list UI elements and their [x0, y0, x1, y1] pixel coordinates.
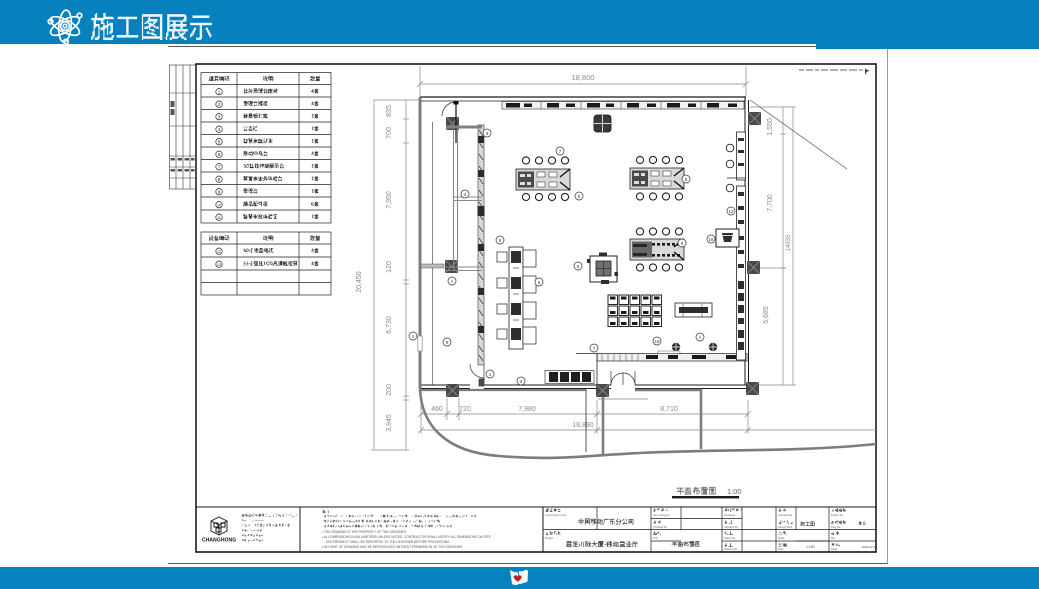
svg-text:• ALL DIMENSIONS IN MILLIMETER: • ALL DIMENSIONS IN MILLIMETERS UNLESS N… — [322, 535, 492, 539]
svg-text:Checked By: Checked By — [778, 513, 793, 517]
svg-text:7: 7 — [593, 346, 596, 351]
svg-text:Design Dept: Design Dept — [778, 525, 793, 529]
svg-text:10: 10 — [217, 203, 221, 207]
svg-text:460: 460 — [431, 406, 443, 413]
svg-text:1: 1 — [489, 372, 492, 377]
svg-text:6: 6 — [577, 264, 580, 269]
svg-text:Checked By: Checked By — [724, 525, 739, 529]
svg-text:1:100: 1:100 — [806, 545, 815, 549]
svg-text:835: 835 — [386, 105, 393, 117]
svg-text:120: 120 — [386, 261, 393, 273]
svg-text:3: 3 — [486, 131, 489, 136]
svg-text:1: 1 — [412, 334, 415, 339]
svg-text:18,800: 18,800 — [572, 73, 595, 82]
svg-text:20,450: 20,450 — [356, 271, 363, 293]
svg-text:Dwg No: Dwg No — [831, 525, 841, 529]
svg-text:720: 720 — [459, 406, 471, 413]
svg-text:• THE DRAWING IS THE PROPERTY: • THE DRAWING IS THE PROPERTY OF THE DES… — [322, 530, 407, 534]
svg-text:Drawn By: Drawn By — [724, 536, 736, 540]
svg-text:9: 9 — [499, 238, 502, 243]
svg-text:• NO PART OF DRAWING MAY BE RE: • NO PART OF DRAWING MAY BE REPRODUCED W… — [322, 545, 463, 549]
svg-text:12: 12 — [217, 250, 221, 254]
svg-text:7: 7 — [218, 164, 221, 169]
svg-text:7: 7 — [559, 149, 562, 154]
svg-text:DISCREPANCY SHALL BE REPORTED: DISCREPANCY SHALL BE REPORTED TO THE DES… — [326, 540, 451, 544]
svg-text:4: 4 — [218, 127, 221, 132]
svg-text:13: 13 — [217, 263, 221, 267]
svg-text:11: 11 — [217, 216, 221, 220]
svg-text:CHANGHONG: CHANGHONG — [202, 538, 236, 544]
svg-text:Page: Page — [831, 547, 838, 551]
svg-text:Rev: Rev — [831, 536, 836, 540]
svg-text:8: 8 — [685, 177, 688, 182]
svg-text:Construction comp: Construction comp — [545, 513, 567, 517]
svg-text:4: 4 — [464, 192, 467, 197]
svg-text:16: 16 — [708, 237, 714, 242]
svg-text:Drawing No: Drawing No — [724, 547, 738, 551]
svg-text:7,980: 7,980 — [518, 406, 536, 413]
svg-text:7,700: 7,700 — [767, 194, 774, 212]
svg-text:1: 1 — [218, 89, 221, 94]
svg-text:8,710: 8,710 — [660, 406, 678, 413]
svg-text:7,950: 7,950 — [386, 191, 393, 209]
svg-text:9: 9 — [218, 189, 221, 194]
svg-text:Scale: Scale — [778, 536, 785, 540]
svg-text:6: 6 — [218, 152, 221, 157]
svg-text:Project No: Project No — [831, 513, 844, 517]
svg-text:3: 3 — [218, 114, 221, 119]
svg-text:Checked By: Checked By — [653, 525, 668, 529]
svg-text:8: 8 — [218, 177, 221, 182]
svg-text:Project: Project — [545, 536, 553, 540]
svg-text:Gen. Designer: Gen. Designer — [653, 513, 670, 517]
svg-text:200: 200 — [386, 384, 393, 396]
svg-text:1:00: 1:00 — [727, 487, 742, 496]
svg-text:1,550: 1,550 — [767, 118, 774, 136]
svg-text:18,890: 18,890 — [572, 422, 594, 429]
svg-text:2020.12.10: 2020.12.10 — [862, 545, 877, 549]
svg-text:12: 12 — [728, 209, 734, 214]
svg-text:9: 9 — [446, 340, 449, 345]
svg-text:Title: Title — [653, 536, 658, 540]
svg-text:5: 5 — [218, 139, 221, 144]
svg-text:9: 9 — [681, 241, 684, 246]
svg-text:2: 2 — [218, 102, 221, 107]
svg-text:3: 3 — [520, 379, 523, 384]
svg-text:Designed: Designed — [724, 513, 736, 517]
svg-text:3,945: 3,945 — [386, 414, 393, 432]
svg-text:5: 5 — [578, 194, 581, 199]
svg-text:5: 5 — [538, 280, 541, 285]
svg-text:14935: 14935 — [786, 234, 792, 251]
svg-text:700: 700 — [386, 127, 393, 139]
svg-text:5,685: 5,685 — [763, 306, 770, 324]
svg-text:15: 15 — [654, 339, 660, 344]
svg-text:6,730: 6,730 — [386, 316, 393, 334]
svg-text:Date: Date — [778, 547, 784, 551]
